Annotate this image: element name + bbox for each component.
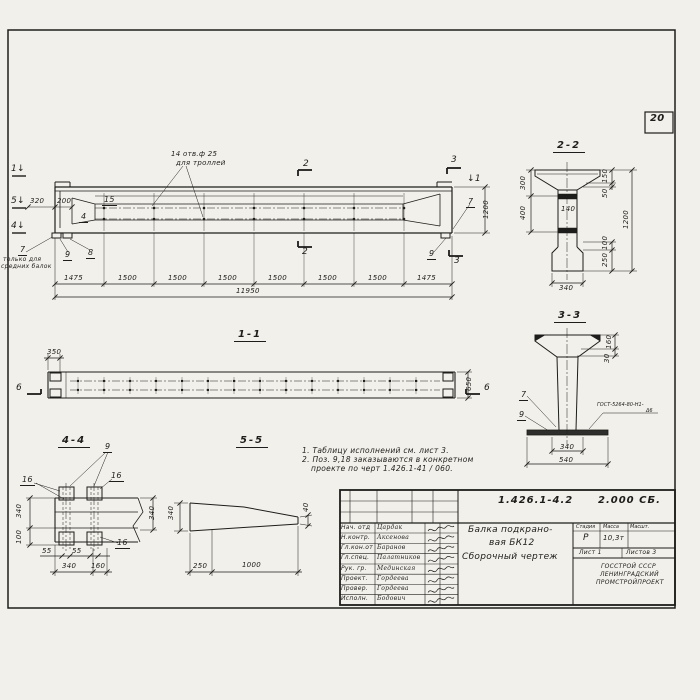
note-middle-beams-line2: средних балок — [1, 264, 52, 270]
dim-160: 160 — [606, 335, 613, 349]
pos-label-16-b: 16 — [109, 472, 124, 482]
weld-gost-note-line2: Δ6 — [646, 409, 653, 414]
pos-label-7-s33: 7 — [519, 391, 528, 401]
cut-mark-6-left: 6 — [16, 384, 22, 393]
dim-340-s33: 340 — [560, 444, 574, 451]
holes-annotation-line1: 14 отв.ф 25 — [171, 151, 217, 158]
pos-label-9-left: 9 — [63, 251, 72, 261]
dim-320: 320 — [30, 198, 44, 205]
sig-role-4: Рук. гр. — [341, 566, 367, 572]
mass-header: Масса — [603, 525, 619, 530]
stage-header: Стадия — [576, 525, 595, 530]
dim-30: 30 — [604, 353, 611, 363]
dim-100: 100 — [602, 236, 609, 250]
dim-300: 300 — [520, 176, 527, 190]
cut-mark-3-bottom: 3 — [454, 257, 460, 266]
sig-name-0: Цардак — [377, 525, 402, 531]
sig-name-6: Гордеева — [377, 586, 409, 592]
pos-label-9-s33: 9 — [517, 411, 526, 421]
sig-name-3: Палатников — [377, 555, 420, 561]
dim-segment-5: 1500 — [318, 275, 337, 282]
pos-label-15: 15 — [102, 196, 117, 206]
note-line-3: проекте по черт 1.426.1-41 / 060. — [311, 465, 453, 473]
dim-55-a: 55 — [42, 548, 52, 555]
drawing-sheet: 20 1↓ 5↓ 4↓ 320 200 15 4 14 отв.ф 25 для… — [0, 0, 700, 700]
cut-mark-3-top: 3 — [451, 156, 457, 165]
view-5-5-title: 5-5 — [236, 436, 268, 448]
drawing-title-line3: Сборочный чертеж — [462, 553, 558, 562]
cut-mark-4-left: 4↓ — [11, 222, 25, 231]
pos-label-9-v44: 9 — [103, 443, 112, 453]
dim-160-v44: 160 — [91, 563, 105, 570]
pos-label-16-a: 16 — [20, 476, 35, 486]
pos-label-4: 4 — [79, 213, 88, 223]
dim-250: 250 — [602, 253, 609, 267]
dim-340-v44-right: 340 — [149, 506, 156, 520]
dim-340-s22: 340 — [559, 285, 573, 292]
pos-label-9-right: 9 — [427, 250, 436, 260]
pos-label-16-c: 16 — [115, 539, 130, 549]
cut-mark-2-top: 2 — [303, 160, 309, 169]
dim-segment-4: 1500 — [268, 275, 287, 282]
dim-340-v55: 340 — [168, 506, 175, 520]
dim-40-v55: 40 — [303, 502, 310, 512]
sheets-total-label: Листов 3 — [626, 550, 657, 556]
dim-segment-0: 1475 — [64, 275, 83, 282]
sig-role-3: Гл.спец. — [341, 555, 369, 561]
view-1-1-title: 1-1 — [234, 330, 266, 342]
sig-name-5: Гордеева — [377, 576, 409, 582]
sig-name-7: Бодович — [377, 596, 406, 602]
dim-1200-section: 1200 — [623, 210, 630, 229]
pos-label-7-left: 7 — [18, 246, 27, 256]
dim-total-11950: 11950 — [236, 288, 260, 295]
pos-label-8: 8 — [86, 249, 95, 259]
note-line-1: 1. Таблицу исполнений см. лист 3. — [302, 447, 449, 455]
sig-role-5: Проект. — [341, 576, 368, 582]
sig-role-1: Н.контр. — [341, 535, 370, 541]
cut-mark-5-left: 5↓ — [11, 197, 25, 206]
sheet-number: 20 — [650, 114, 665, 124]
dim-100-v44: 100 — [16, 530, 23, 544]
doc-code: 2.000 СБ. — [598, 496, 661, 506]
mass-value: 10,3т — [603, 535, 624, 542]
dim-200: 200 — [57, 198, 71, 205]
sig-name-4: Мединская — [377, 566, 416, 572]
dim-140: 140 — [561, 206, 575, 213]
dim-650: 650 — [466, 377, 473, 391]
dim-segment-1: 1500 — [118, 275, 137, 282]
dim-segment-6: 1500 — [368, 275, 387, 282]
org-name-line2: ЛЕНИНГРАДСКИЙ — [600, 572, 659, 578]
scale-header: Масшт. — [630, 525, 649, 530]
drawing-title-line1: Балка подкрано- — [468, 526, 553, 535]
pos-label-7-right: 7 — [466, 198, 475, 208]
view-4-4-title: 4-4 — [58, 436, 90, 448]
cut-mark-1-right: ↓1 — [467, 175, 481, 184]
note-line-2: 2. Поз. 9,18 заказываются в конкретном — [302, 456, 474, 464]
org-name-line1: ГОССТРОЙ СССР — [601, 564, 656, 570]
dim-1200-elevation: 1200 — [483, 200, 490, 219]
doc-number: 1.426.1-4.2 — [498, 496, 573, 506]
holes-annotation-line2: для троллей — [176, 160, 226, 167]
dim-400: 400 — [520, 206, 527, 220]
dim-50: 50 — [602, 188, 609, 198]
cut-mark-2-bottom: 2 — [302, 248, 308, 257]
sheet-count-label: Лист 1 — [579, 550, 602, 556]
dim-segment-2: 1500 — [168, 275, 187, 282]
dim-340-v44-left: 340 — [16, 504, 23, 518]
sig-name-2: Баранов — [377, 545, 406, 551]
dim-540-s33: 540 — [559, 457, 573, 464]
weld-gost-note-line1: ГОСТ-5264-80-Н1- — [597, 403, 644, 408]
sig-role-0: Нач. отд — [341, 525, 370, 531]
dim-250-v55: 250 — [193, 563, 207, 570]
drawing-title-line2: вая БК12 — [489, 539, 535, 548]
dim-340-v44-bottom: 340 — [62, 563, 76, 570]
dim-55-b: 55 — [72, 548, 82, 555]
section-3-3-title: 3-3 — [554, 311, 586, 323]
sig-role-2: Гл.кон.от — [341, 545, 373, 551]
org-name-line3: ПРОМСТРОЙПРОЕКТ — [596, 580, 664, 586]
sig-role-7: Исполн. — [341, 596, 368, 602]
dim-350: 350 — [47, 349, 61, 356]
dim-segment-7: 1475 — [417, 275, 436, 282]
sig-name-1: Аксенова — [377, 535, 409, 541]
dim-150: 150 — [602, 169, 609, 183]
dim-segment-3: 1500 — [218, 275, 237, 282]
dim-1000-v55: 1000 — [242, 562, 261, 569]
cut-mark-6-right: 6 — [484, 384, 490, 393]
stage-value: Р — [583, 534, 589, 543]
sig-role-6: Провер. — [341, 586, 368, 592]
cut-mark-1-left: 1↓ — [11, 165, 25, 174]
section-2-2-title: 2-2 — [553, 141, 585, 153]
